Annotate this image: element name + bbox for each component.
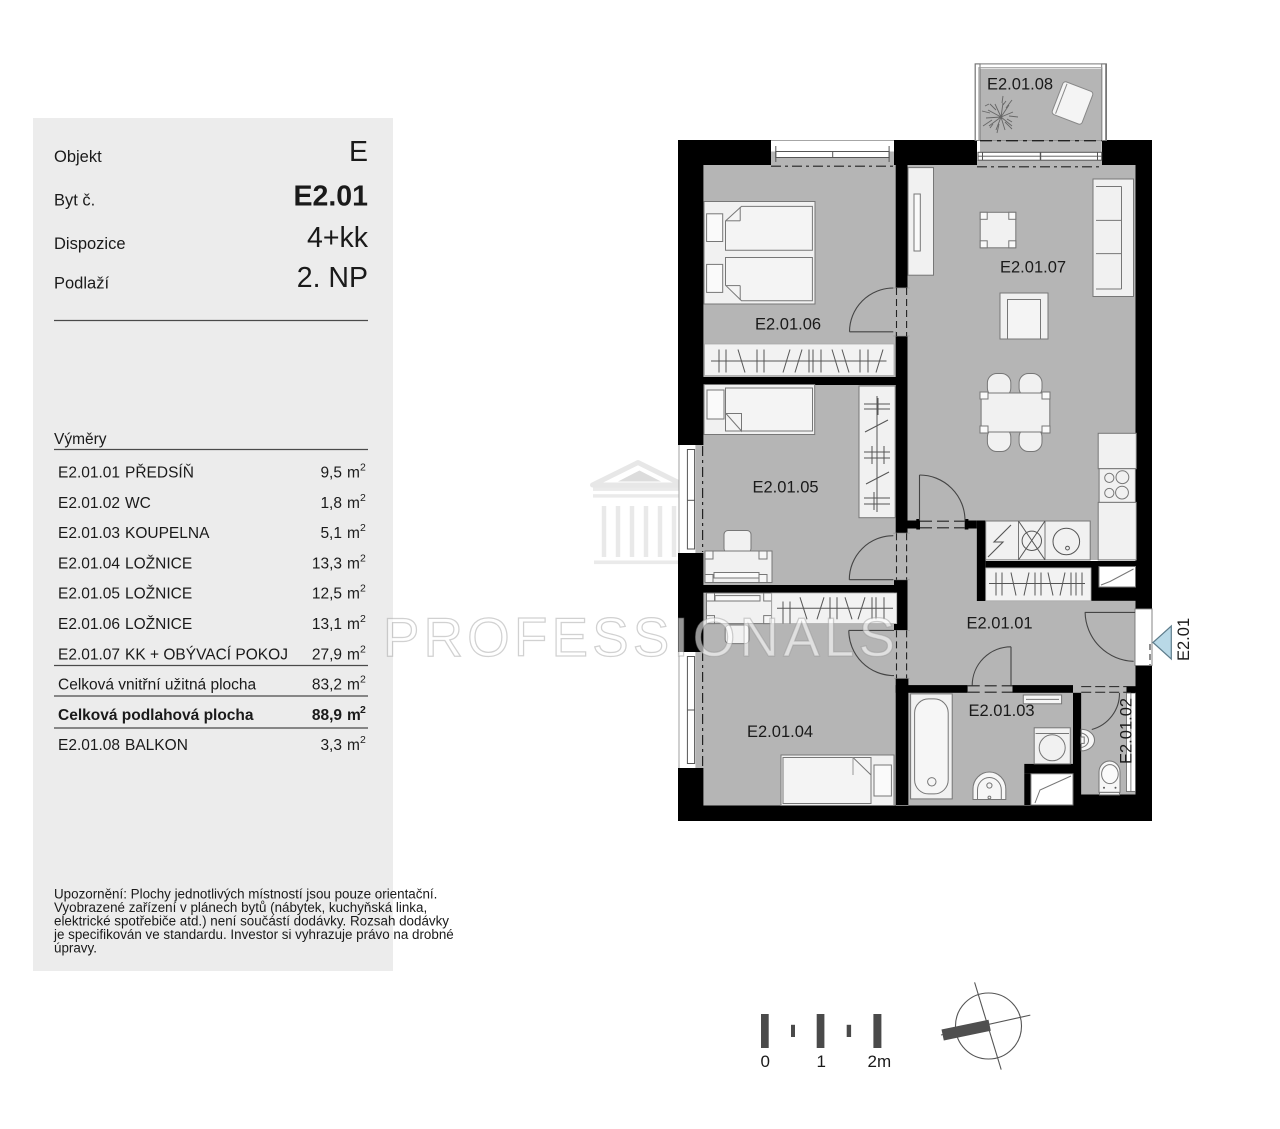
svg-text:E2.01.04: E2.01.04 (58, 555, 120, 572)
svg-text:E2.01.01: E2.01.01 (58, 465, 120, 482)
svg-text:2: 2 (360, 462, 366, 474)
svg-text:3,3: 3,3 (320, 737, 342, 754)
svg-text:2: 2 (360, 704, 366, 716)
svg-text:2: 2 (360, 492, 366, 504)
svg-text:E2.01.06: E2.01.06 (58, 616, 120, 633)
svg-text:2: 2 (360, 643, 366, 655)
svg-text:Výměry: Výměry (54, 431, 107, 448)
svg-text:KOUPELNA: KOUPELNA (125, 525, 210, 542)
svg-text:5,1: 5,1 (320, 525, 342, 542)
svg-text:Objekt: Objekt (54, 148, 102, 166)
svg-text:13,1: 13,1 (312, 616, 342, 633)
svg-text:Celková podlahová plocha: Celková podlahová plocha (58, 707, 254, 724)
svg-text:2m: 2m (868, 1052, 892, 1071)
svg-text:LOŽNICE: LOŽNICE (125, 555, 192, 572)
svg-text:m: m (347, 646, 360, 663)
svg-text:E2.01: E2.01 (294, 181, 369, 213)
svg-text:83,2: 83,2 (312, 677, 342, 694)
svg-text:2. NP: 2. NP (297, 262, 368, 294)
svg-text:E2.01.07: E2.01.07 (58, 646, 120, 663)
svg-text:2: 2 (360, 734, 366, 746)
svg-text:KK + OBÝVACÍ POKOJ: KK + OBÝVACÍ POKOJ (125, 646, 288, 663)
svg-text:2: 2 (360, 583, 366, 595)
svg-text:2: 2 (360, 674, 366, 686)
svg-text:m: m (347, 677, 360, 694)
svg-text:E2.01.01: E2.01.01 (967, 615, 1033, 633)
svg-text:m: m (347, 495, 360, 512)
svg-text:je specifikován ve standardu.: je specifikován ve standardu. Investor s… (53, 927, 454, 942)
svg-text:Podlaží: Podlaží (54, 275, 109, 293)
svg-text:LOŽNICE: LOŽNICE (125, 616, 192, 633)
svg-text:m: m (347, 465, 360, 482)
svg-text:Celková vnitřní užitná plocha: Celková vnitřní užitná plocha (58, 677, 257, 694)
svg-text:m: m (347, 616, 360, 633)
svg-text:E2.01.03: E2.01.03 (58, 525, 120, 542)
svg-text:E2.01.03: E2.01.03 (969, 702, 1035, 720)
svg-text:PŘEDSÍŇ: PŘEDSÍŇ (125, 465, 194, 482)
svg-text:Dispozice: Dispozice (54, 235, 126, 253)
svg-text:2: 2 (360, 522, 366, 534)
svg-text:E2.01.06: E2.01.06 (755, 316, 821, 334)
svg-text:E2.01.08: E2.01.08 (987, 76, 1053, 94)
svg-text:1,8: 1,8 (320, 495, 342, 512)
svg-text:E2.01.08: E2.01.08 (58, 737, 120, 754)
svg-text:9,5: 9,5 (320, 465, 342, 482)
svg-text:Byt č.: Byt č. (54, 192, 95, 210)
svg-text:m: m (347, 737, 360, 754)
svg-text:m: m (347, 555, 360, 572)
svg-text:88,9: 88,9 (312, 707, 343, 724)
svg-text:m: m (347, 586, 360, 603)
svg-text:E2.01.05: E2.01.05 (753, 479, 819, 497)
svg-text:E2.01.05: E2.01.05 (58, 586, 120, 603)
svg-text:LOŽNICE: LOŽNICE (125, 586, 192, 603)
svg-text:0: 0 (761, 1052, 770, 1071)
svg-text:4+kk: 4+kk (307, 222, 369, 254)
svg-text:E2.01.02: E2.01.02 (1118, 698, 1136, 764)
svg-text:m: m (347, 707, 361, 724)
svg-text:m: m (347, 525, 360, 542)
svg-text:12,5: 12,5 (312, 586, 342, 603)
svg-text:WC: WC (125, 495, 151, 512)
svg-text:úpravy.: úpravy. (54, 941, 97, 956)
svg-text:BALKON: BALKON (125, 737, 188, 754)
svg-text:E2.01.04: E2.01.04 (747, 723, 813, 741)
svg-text:13,3: 13,3 (312, 555, 342, 572)
svg-text:E2.01.07: E2.01.07 (1000, 259, 1066, 277)
svg-text:27,9: 27,9 (312, 646, 342, 663)
svg-text:E2.01: E2.01 (1175, 618, 1193, 661)
svg-text:2: 2 (360, 552, 366, 564)
svg-text:2: 2 (360, 613, 366, 625)
svg-text:PROFESSIONALS: PROFESSIONALS (383, 607, 899, 668)
svg-text:E2.01.02: E2.01.02 (58, 495, 120, 512)
svg-text:1: 1 (817, 1052, 826, 1071)
svg-text:E: E (349, 136, 368, 168)
